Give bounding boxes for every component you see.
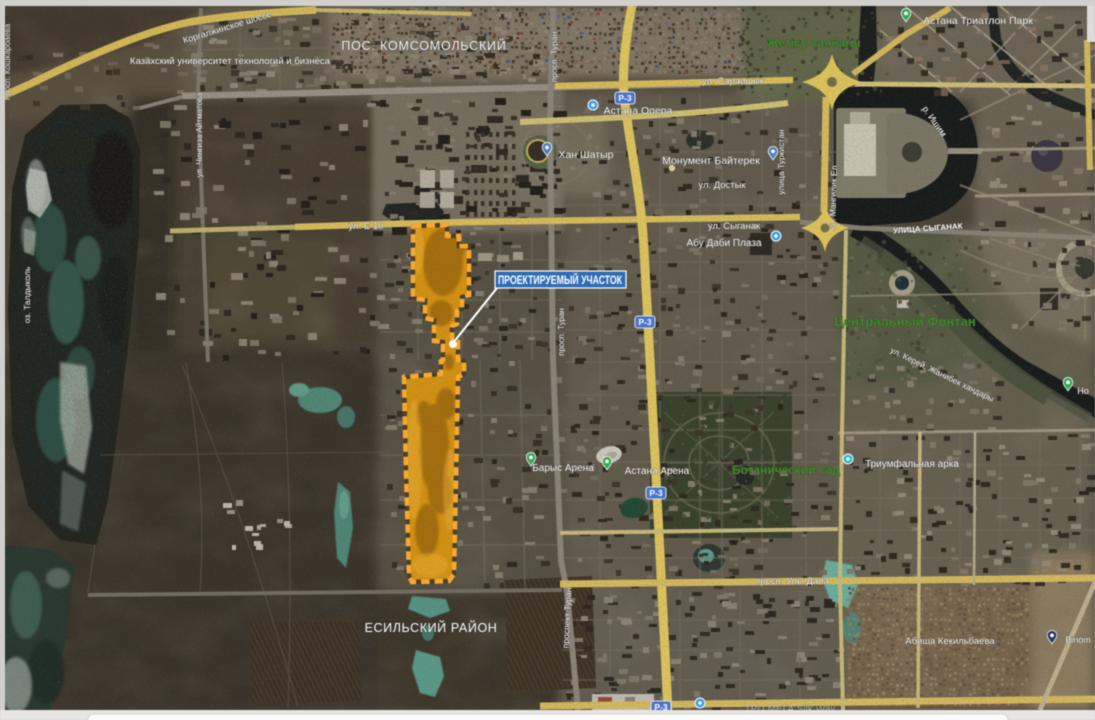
svg-text:Абу Даби Плаза: Абу Даби Плаза bbox=[687, 237, 762, 249]
svg-text:Р-3: Р-3 bbox=[618, 93, 632, 103]
svg-text:Центральный Фонтан: Центральный Фонтан bbox=[834, 314, 975, 329]
svg-text:Хан Шатыр: Хан Шатыр bbox=[559, 149, 614, 161]
svg-text:просп. Улы Дала: просп. Улы Дала bbox=[755, 576, 830, 587]
svg-text:ул. Е 10: ул. Е 10 bbox=[349, 221, 384, 232]
svg-text:Жетісу саябағы: Жетісу саябағы bbox=[766, 36, 860, 50]
svg-text:Р-3: Р-3 bbox=[638, 317, 652, 327]
svg-text:Барыс Арена: Барыс Арена bbox=[532, 463, 594, 474]
svg-text:оз. Талдыколь: оз. Талдыколь bbox=[22, 266, 32, 323]
svg-text:Монумент Байтерек: Монумент Байтерек bbox=[662, 155, 760, 167]
svg-text:ПРОЕКТИРУЕМЫЙ УЧАСТОК: ПРОЕКТИРУЕМЫЙ УЧАСТОК bbox=[498, 274, 623, 287]
svg-text:просп. Туран: просп. Туран bbox=[549, 31, 559, 82]
svg-text:Ботанический сад: Ботанический сад bbox=[732, 463, 841, 477]
svg-text:Binom: Binom bbox=[1065, 635, 1091, 645]
svg-text:Триумфальная арка: Триумфальная арка bbox=[865, 458, 959, 470]
svg-text:Р-3: Р-3 bbox=[649, 488, 663, 498]
svg-text:ул. Достык: ул. Достык bbox=[698, 180, 746, 191]
svg-text:ЕСИЛЬСКИЙ РАЙОН: ЕСИЛЬСКИЙ РАЙОН bbox=[365, 620, 498, 635]
svg-text:ул. Чингиза Айтматова: ул. Чингиза Айтматова bbox=[195, 92, 204, 177]
svg-text:ул. Сыганак: ул. Сыганак bbox=[708, 221, 761, 232]
svg-text:Астана Опера: Астана Опера bbox=[604, 105, 673, 117]
svg-text:Астана Арена: Астана Арена bbox=[625, 466, 690, 477]
svg-text:Астана Триатлон Парк: Астана Триатлон Парк bbox=[923, 15, 1033, 27]
svg-text:ул. Сараишык: ул. Сараишык bbox=[702, 76, 765, 87]
svg-text:Но: Но bbox=[1077, 386, 1089, 396]
svg-text:просп. Туран: просп. Туран bbox=[557, 308, 566, 356]
svg-text:Казахский университет технолог: Казахский университет технологий и бизне… bbox=[130, 56, 331, 67]
svg-text:улица Туркистан: улица Туркистан bbox=[776, 129, 786, 195]
svg-text:Абиша Кекильбаева: Абиша Кекильбаева bbox=[905, 636, 995, 647]
svg-text:ПОС. КОМСОМОЛЬСКИЙ: ПОС. КОМСОМОЛЬСКИЙ bbox=[341, 38, 506, 53]
